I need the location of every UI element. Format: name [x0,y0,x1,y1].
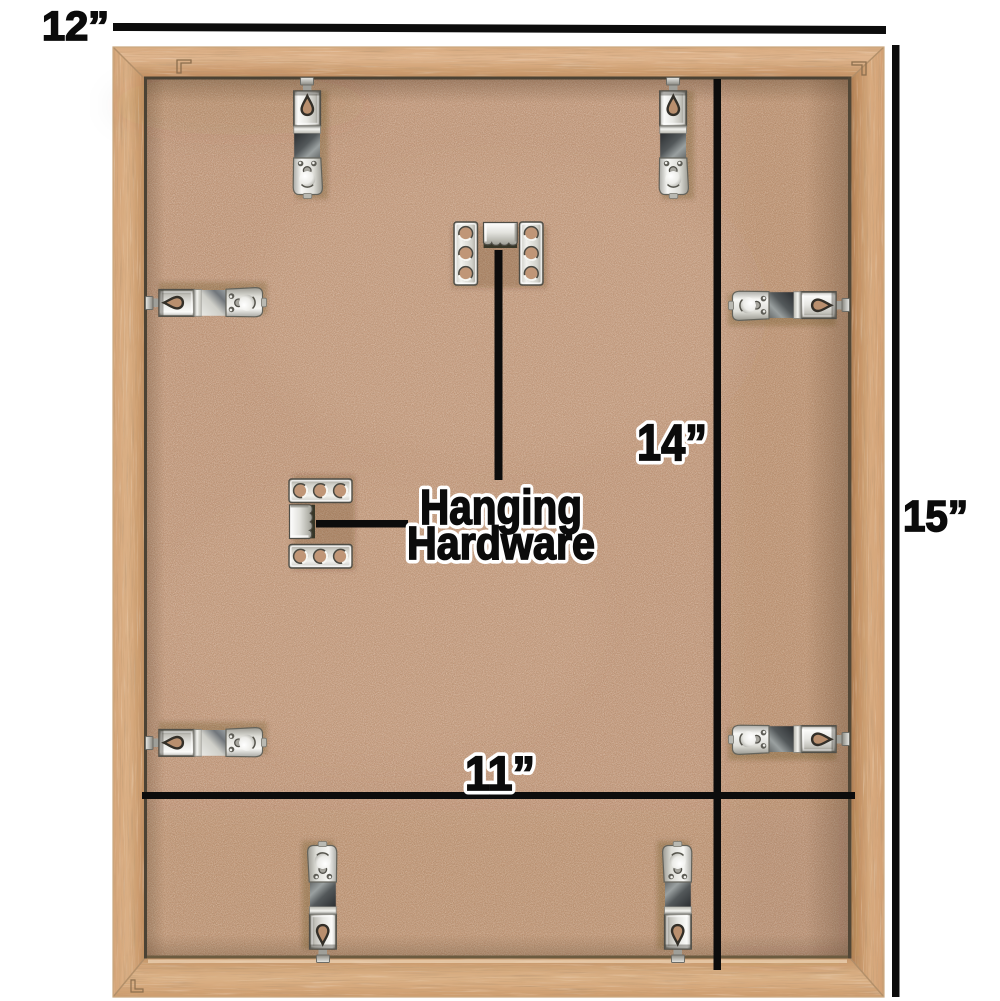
svg-text:15”: 15” [903,492,968,541]
svg-text:11”: 11” [465,748,535,801]
svg-text:14”: 14” [637,414,707,471]
svg-text:12”: 12” [42,3,109,49]
svg-text:Hardware: Hardware [407,517,595,569]
